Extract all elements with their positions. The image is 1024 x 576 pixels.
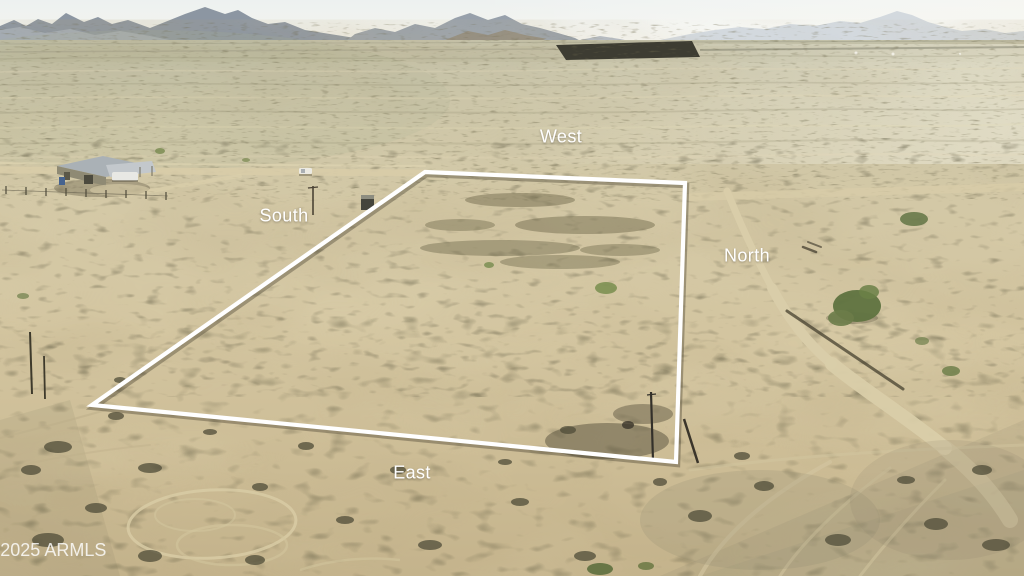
- desert-aerial-scene: [0, 0, 1024, 576]
- armls-watermark: ©2025 ARMLS: [0, 540, 106, 561]
- direction-label-east: East: [393, 463, 431, 484]
- direction-label-north: North: [724, 246, 770, 267]
- blue-container: [59, 177, 65, 185]
- parked-rv: [112, 172, 138, 181]
- direction-label-west: West: [540, 127, 582, 148]
- white-car: [299, 168, 312, 176]
- aerial-listing-photo: West South North East ©2025 ARMLS: [0, 0, 1024, 576]
- direction-label-south: South: [259, 206, 308, 227]
